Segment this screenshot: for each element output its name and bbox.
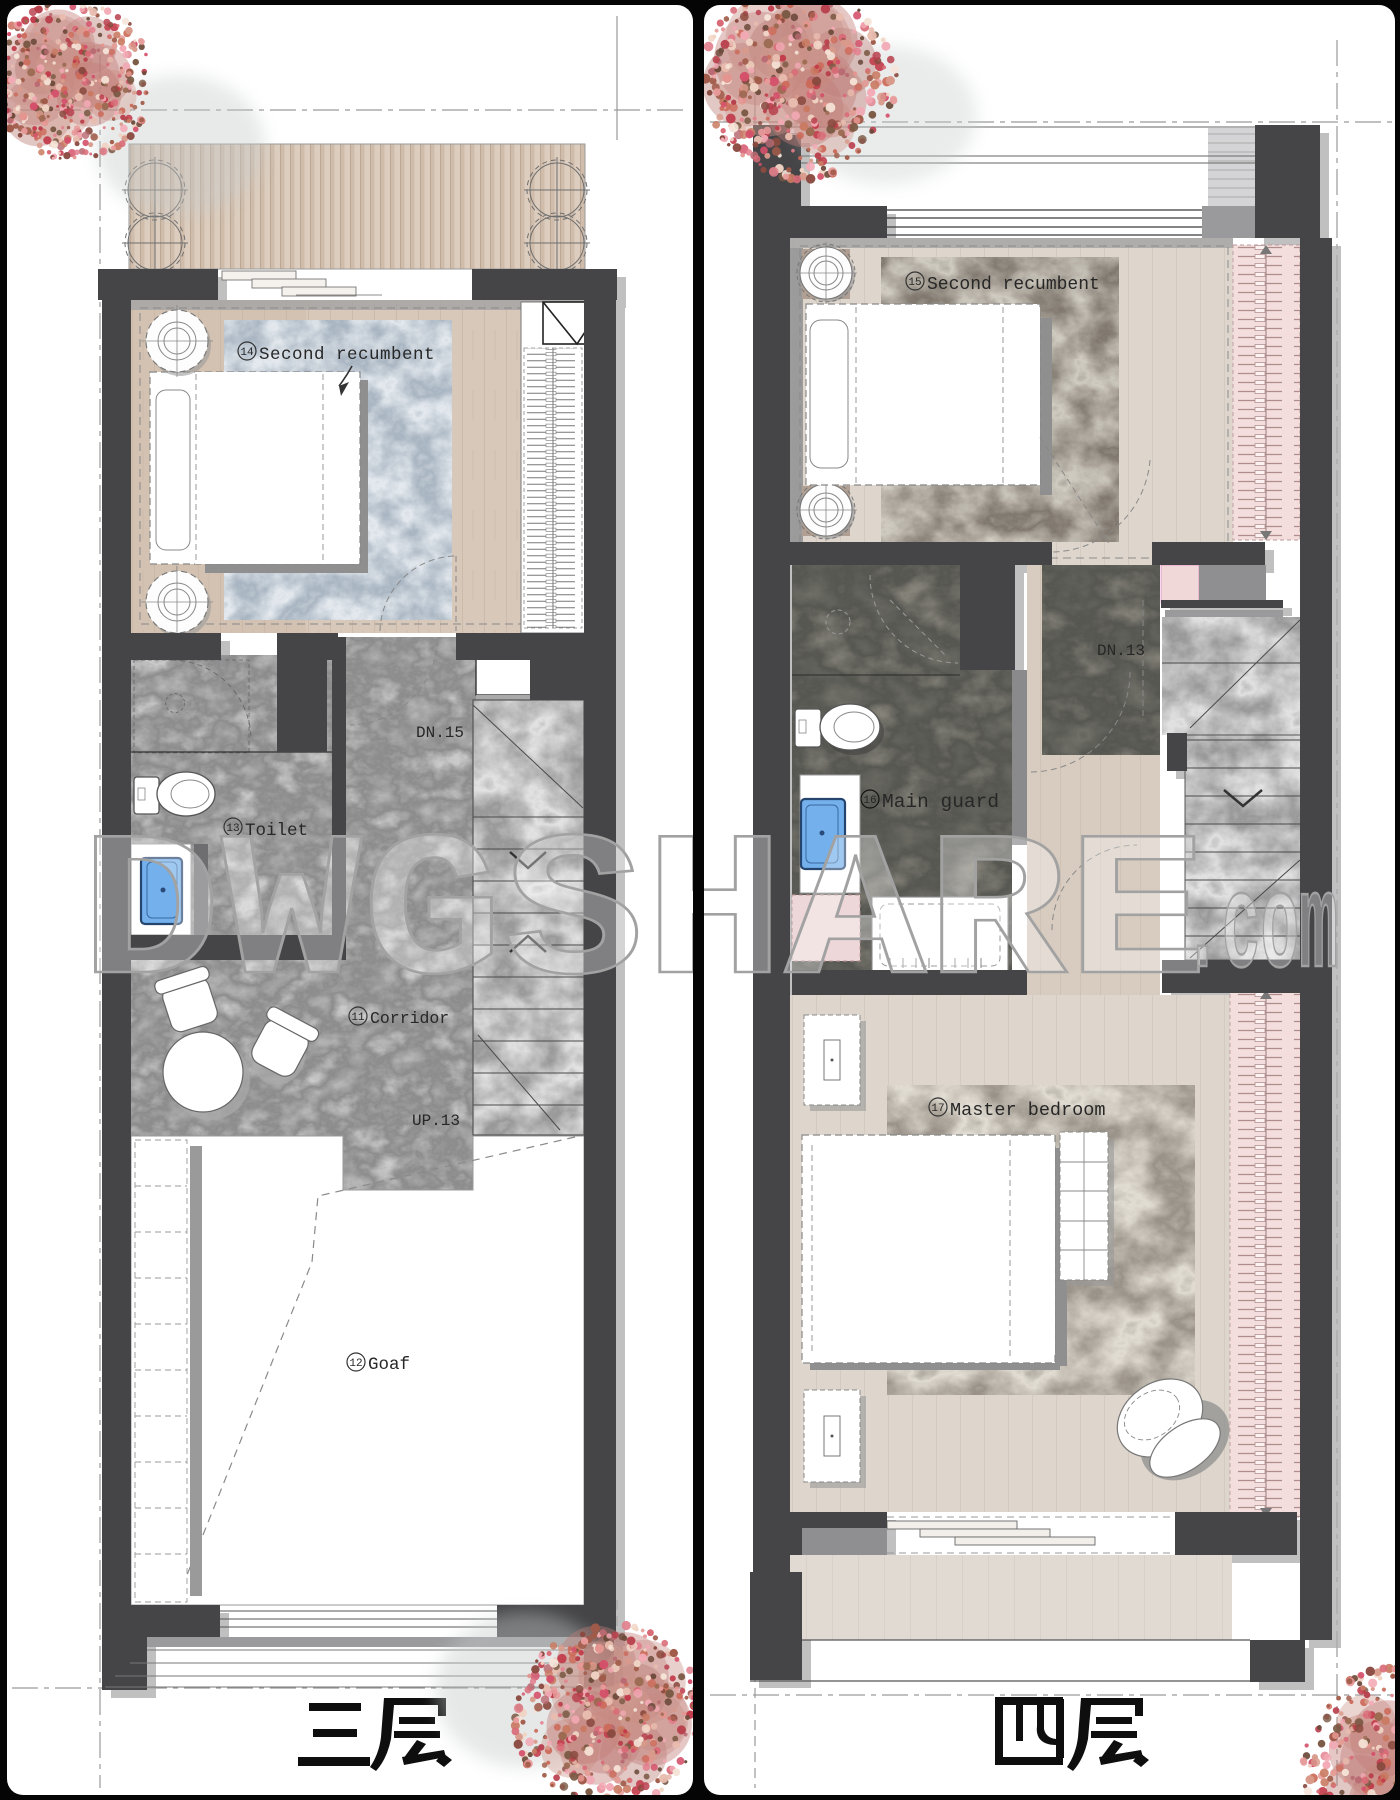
svg-text:12: 12: [349, 1358, 362, 1370]
svg-text:Second recumbent: Second recumbent: [927, 275, 1100, 295]
svg-text:14: 14: [240, 347, 254, 359]
svg-text:DN.15: DN.15: [416, 724, 464, 742]
svg-text:Master bedroom: Master bedroom: [950, 1100, 1105, 1121]
svg-text:UP.13: UP.13: [412, 1112, 460, 1130]
svg-text:.com: .com: [1183, 853, 1338, 1007]
svg-text:15: 15: [908, 277, 921, 289]
svg-text:Second recumbent: Second recumbent: [259, 345, 435, 365]
svg-text:DWGSHARE: DWGSHARE: [80, 801, 1208, 1034]
svg-text:Goaf: Goaf: [368, 1355, 410, 1375]
svg-text:17: 17: [931, 1103, 944, 1115]
svg-text:DN.13: DN.13: [1097, 642, 1145, 660]
